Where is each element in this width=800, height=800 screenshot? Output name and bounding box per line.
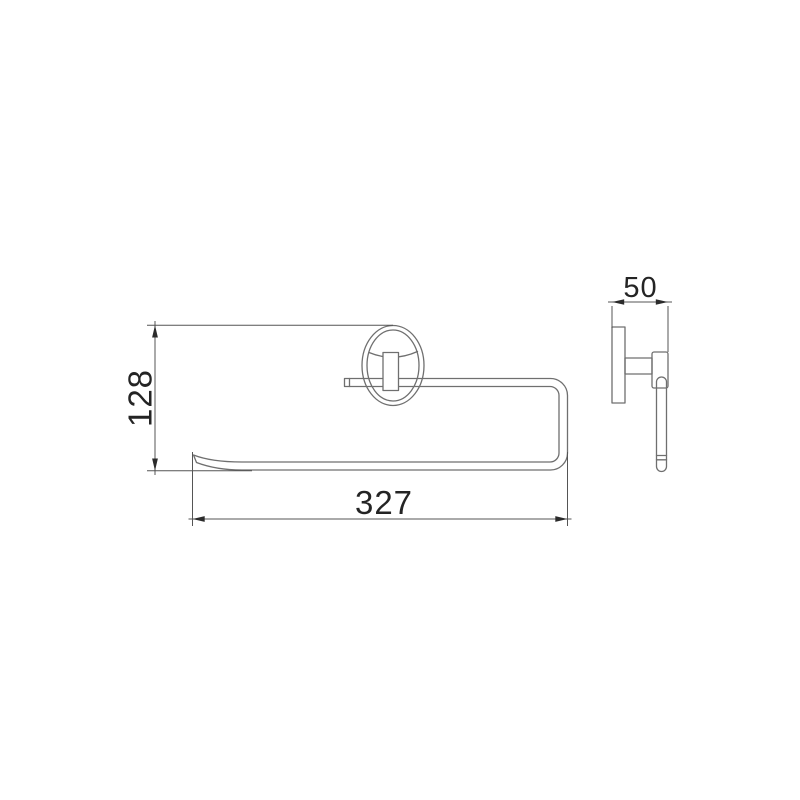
bar-holder-side xyxy=(652,352,668,388)
technical-drawing: 128 327 xyxy=(0,0,800,800)
width-dimension-label: 327 xyxy=(355,484,413,521)
towel-bar-side xyxy=(657,377,667,472)
depth-dimension-label: 50 xyxy=(623,272,657,304)
dimension-depth: 50 xyxy=(608,272,672,352)
dimension-height: 128 xyxy=(122,321,394,475)
dimension-width: 327 xyxy=(189,452,572,526)
mounting-post xyxy=(383,353,399,391)
side-view: 50 xyxy=(608,272,672,472)
depth-arrow-left-icon xyxy=(612,299,624,305)
height-arrow-down-icon xyxy=(152,459,158,471)
wall-plate-side xyxy=(612,327,625,403)
drawing-canvas: 128 327 xyxy=(0,0,800,800)
width-arrow-right-icon xyxy=(555,516,567,522)
width-arrow-left-icon xyxy=(193,516,205,522)
height-arrow-up-icon xyxy=(152,325,158,337)
height-dimension-label: 128 xyxy=(122,369,159,427)
towel-bar-outline xyxy=(194,378,568,470)
mounting-stem-side xyxy=(625,358,652,374)
front-view: 128 327 xyxy=(122,321,572,526)
